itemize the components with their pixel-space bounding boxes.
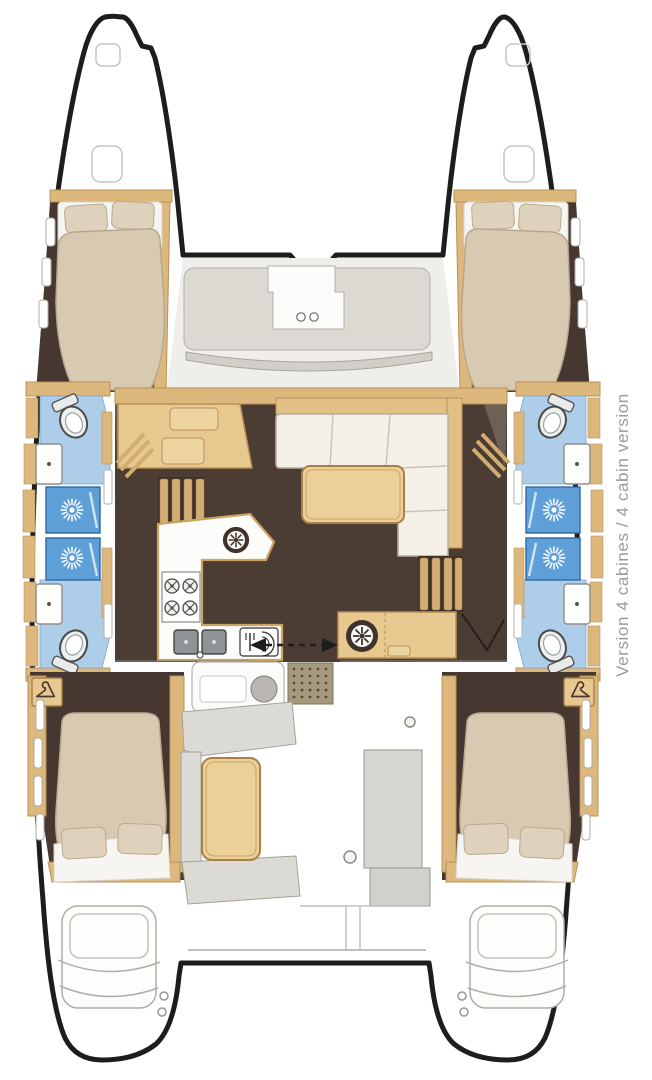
deck-fitting xyxy=(344,851,356,863)
hull-window xyxy=(34,738,42,768)
aft-cabin xyxy=(28,672,184,882)
counter-locker xyxy=(170,408,218,430)
hull-window xyxy=(36,814,44,840)
hull-window xyxy=(34,776,42,806)
inboard-wall xyxy=(102,412,112,464)
foredeck xyxy=(167,258,459,388)
pillow xyxy=(117,823,162,855)
doormat-icon xyxy=(288,663,333,704)
deck-fitting xyxy=(405,717,415,727)
sofa-back-rail xyxy=(276,398,454,414)
transom-steps xyxy=(58,906,168,1016)
counter-locker xyxy=(162,438,204,464)
forward-cabin xyxy=(36,190,172,392)
saloon xyxy=(115,388,509,662)
deck-hatch-icon xyxy=(297,313,305,321)
cockpit-bench-side xyxy=(181,752,201,862)
helm-step xyxy=(370,868,430,906)
sofa-side-rail xyxy=(447,398,462,548)
starboard-companionway-steps xyxy=(418,556,463,612)
pillow xyxy=(61,827,107,859)
cabin-head-trim xyxy=(50,190,172,202)
bulkhead-sill xyxy=(26,382,110,396)
cockpit-bench-aft xyxy=(182,856,300,904)
saloon-table xyxy=(302,466,404,523)
basin-drain xyxy=(47,602,51,606)
chart-table-locker xyxy=(388,646,410,656)
pillow xyxy=(64,204,108,234)
double-bed-mattress xyxy=(56,229,164,390)
stove-burners-icon xyxy=(162,572,200,622)
cockpit-table xyxy=(202,758,260,860)
hull-window xyxy=(46,218,55,246)
round-sink-icon xyxy=(251,676,277,702)
version-caption: Version 4 cabines / 4 cabin version xyxy=(613,393,632,677)
hull-window xyxy=(39,300,48,328)
hull-window xyxy=(36,700,44,730)
pillow xyxy=(111,201,154,230)
hull-window xyxy=(42,258,51,286)
deck-hatch-icon xyxy=(310,313,318,321)
floor-plan-figure: Version 4 cabines / 4 cabin version xyxy=(0,0,652,1080)
floor-plan-svg: Version 4 cabines / 4 cabin version xyxy=(0,0,652,1080)
module-tray xyxy=(200,676,246,702)
door-leaf xyxy=(104,470,112,504)
door-leaf xyxy=(104,604,112,638)
helm-seat-module xyxy=(364,750,422,868)
foredeck-recess xyxy=(268,266,344,329)
basin-drain xyxy=(47,462,51,466)
